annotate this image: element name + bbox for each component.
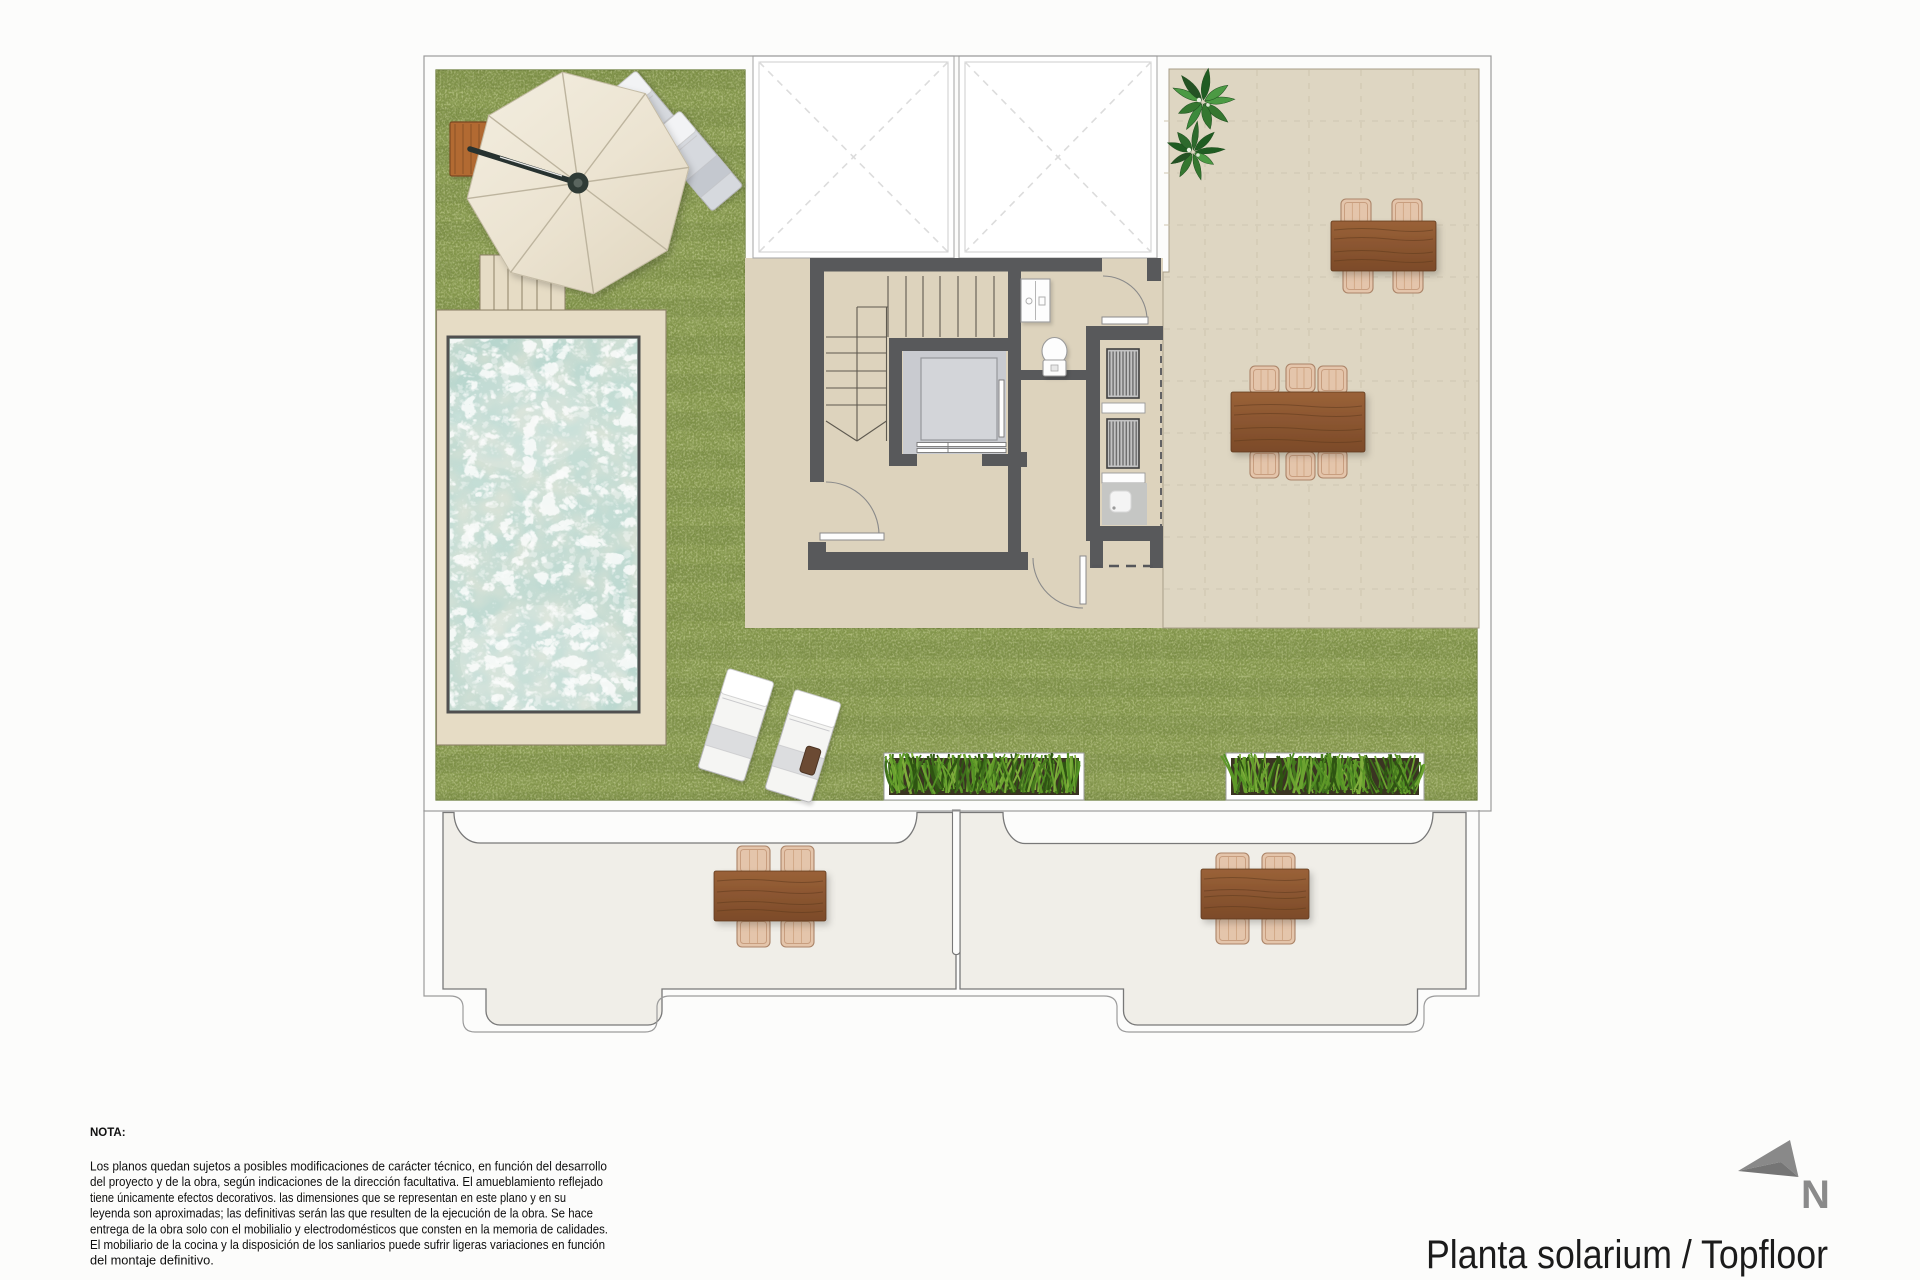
svg-text:del proyecto y de la obra, seg: del proyecto y de la obra, según indicac… bbox=[90, 1174, 603, 1189]
svg-text:NOTA:: NOTA: bbox=[90, 1127, 126, 1139]
svg-text:del montaje definitivo.: del montaje definitivo. bbox=[90, 1253, 214, 1268]
svg-text:tiene únicamente efectos decor: tiene únicamente efectos decorativos. la… bbox=[90, 1190, 566, 1205]
svg-text:Planta solarium / Topfloor: Planta solarium / Topfloor bbox=[1426, 1233, 1828, 1277]
svg-text:leyenda son aproximadas; las d: leyenda son aproximadas; las definitivas… bbox=[90, 1206, 593, 1221]
svg-text:N: N bbox=[1801, 1173, 1830, 1217]
svg-text:entrega de la obra solo con el: entrega de la obra solo con el mobiliali… bbox=[90, 1221, 608, 1236]
svg-text:Los planos quedan sujetos a po: Los planos quedan sujetos a posibles mod… bbox=[90, 1159, 607, 1174]
svg-text:El mobiliario de la cocina y l: El mobiliario de la cocina y la disposic… bbox=[90, 1237, 605, 1252]
